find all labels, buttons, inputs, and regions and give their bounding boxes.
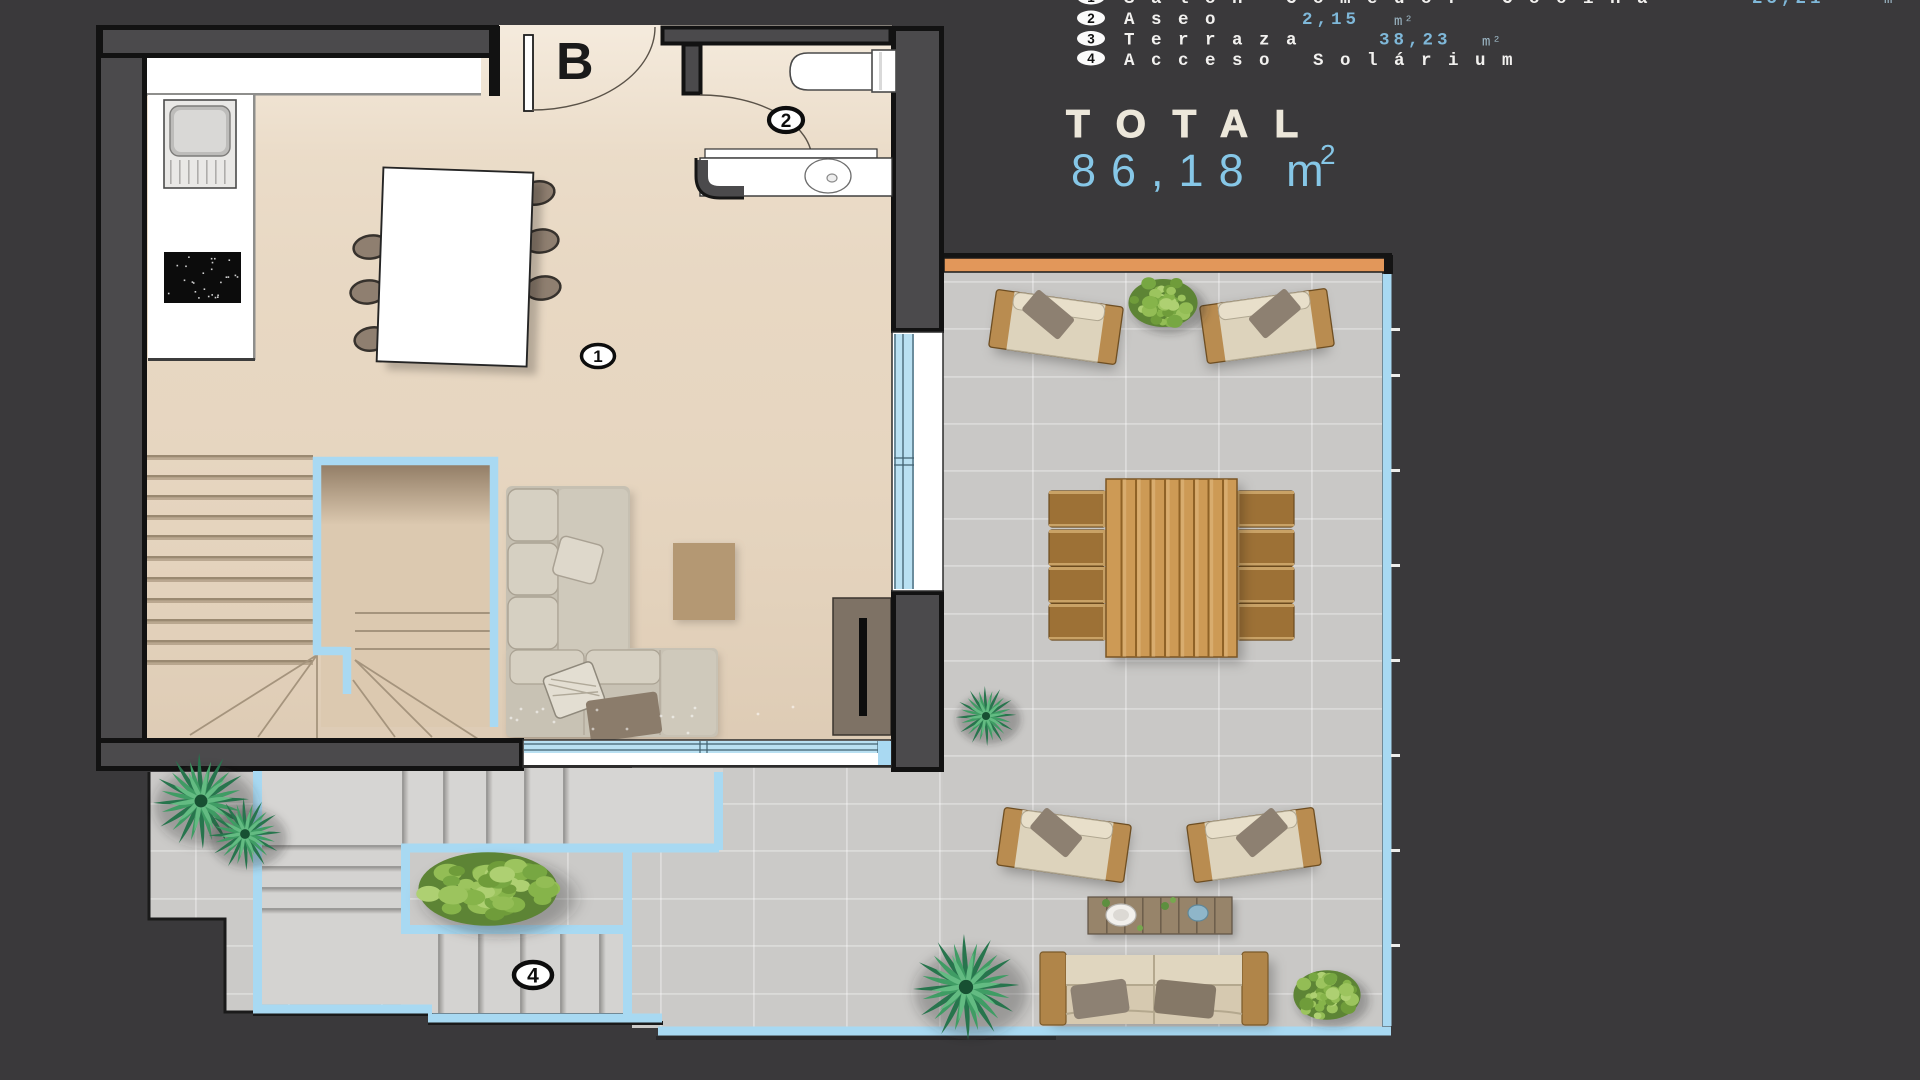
svg-text:Aseo: Aseo: [1124, 10, 1232, 30]
svg-text:Acceso Solárium: Acceso Solárium: [1124, 51, 1529, 71]
svg-text:m²: m²: [1482, 35, 1503, 51]
svg-text:2: 2: [781, 111, 792, 132]
svg-text:m²: m²: [1394, 14, 1415, 30]
svg-text:3: 3: [1087, 31, 1095, 46]
svg-text:2,15: 2,15: [1302, 10, 1360, 30]
svg-text:Salón Comedor Cocina: Salón Comedor Cocina: [1124, 0, 1664, 9]
svg-text:Terraza: Terraza: [1124, 31, 1313, 51]
svg-text:4: 4: [1087, 51, 1095, 66]
svg-text:m²: m²: [1884, 0, 1905, 8]
svg-text:4: 4: [527, 965, 539, 988]
svg-text:38,23: 38,23: [1379, 31, 1452, 51]
svg-text:TOTAL: TOTAL: [1066, 103, 1325, 146]
svg-text:86,18 m: 86,18 m: [1071, 145, 1339, 196]
svg-text:25,21: 25,21: [1752, 0, 1825, 9]
svg-text:2: 2: [1087, 11, 1095, 26]
svg-text:1: 1: [1087, 0, 1095, 5]
svg-text:B: B: [556, 33, 594, 91]
svg-text:1: 1: [593, 347, 602, 366]
svg-text:2: 2: [1320, 139, 1336, 170]
